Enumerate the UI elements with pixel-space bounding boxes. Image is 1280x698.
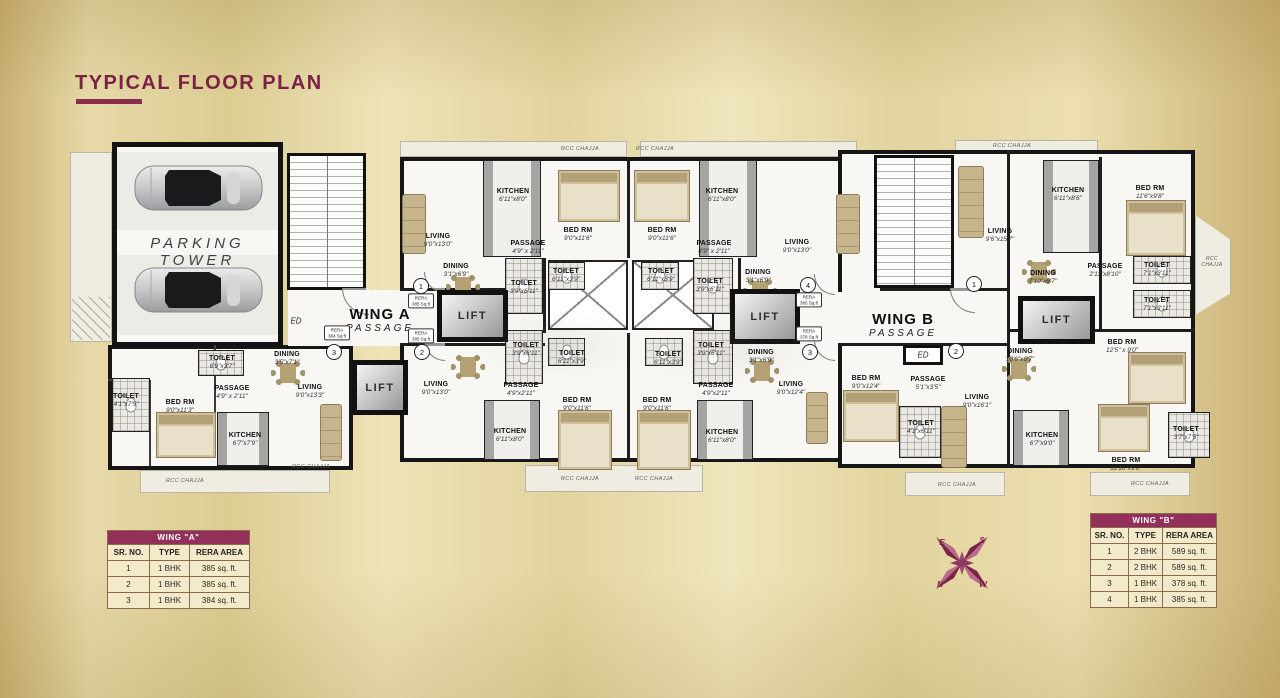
wing-b-table: WING "B" SR. NO. TYPE RERA AREA 12 BHK58… xyxy=(1090,513,1217,608)
compass-north-label: N xyxy=(937,580,943,589)
lift: LIFT xyxy=(730,289,800,344)
wing-b-table-title: WING "B" xyxy=(1091,514,1217,528)
room-label: KITCHEN6'11"x8'0" xyxy=(706,188,739,204)
rera-area-badge: RERA384 Sq.ft xyxy=(324,325,350,340)
room-label: BED RM9'0"x11'3" xyxy=(166,399,195,415)
room-label: PASSAGE4'9" x 2'11" xyxy=(696,240,731,256)
compass-south-label: S xyxy=(979,536,985,545)
unit-number-badge: 2 xyxy=(948,343,964,359)
chajja-label: RCC CHAJJA xyxy=(993,143,1031,149)
room-label: LIVING9'0"x13'0" xyxy=(424,233,452,249)
lift: LIFT xyxy=(1018,296,1095,344)
room-label: DINING3'5"x7'1" xyxy=(274,351,300,367)
room-label: PASSAGE4'9" x 2'11" xyxy=(214,385,249,401)
room-label: TOILET7'1"x3'11" xyxy=(1143,297,1171,313)
room-label: LIVING9'0"x16'1" xyxy=(963,394,991,410)
sofa-icon xyxy=(941,406,967,468)
room-label: TOILET6'11"x3'9" xyxy=(552,268,580,284)
floor-plan-page: TYPICAL FLOOR PLAN PARKING TOWER xyxy=(0,0,1280,698)
room-label: PASSAGE2'11"x8'10" xyxy=(1087,263,1122,279)
chajja-label: RCC CHAJJA xyxy=(292,464,330,470)
car-top-view-icon xyxy=(131,161,266,215)
sofa-icon xyxy=(806,392,828,444)
parking-tower: PARKING TOWER xyxy=(112,142,283,347)
stair-hatch xyxy=(72,297,110,340)
chajja-label: RCC CHAJJA xyxy=(166,478,204,484)
room-label: DINING10'6"x6'7" xyxy=(1006,348,1034,364)
table-row: 11 BHK385 sq. ft. xyxy=(108,561,250,577)
table-row: 31 BHK378 sq. ft. xyxy=(1091,576,1217,592)
chajja-label: RCC CHAJJA xyxy=(636,146,674,152)
rera-area-badge: RERA385 Sq.ft xyxy=(408,328,434,343)
room-label: BED RM9'0"x12'4" xyxy=(852,375,881,391)
bed-icon xyxy=(1098,404,1150,452)
room-label: TOILET3'9"x6'11" xyxy=(510,280,538,296)
room-label: TOILET6'11"x3'9" xyxy=(654,351,682,367)
table-row: 21 BHK385 sq. ft. xyxy=(108,577,250,593)
chajja-label: RCC CHAJJA xyxy=(938,482,976,488)
room-label: TOILET3'9"x6'11" xyxy=(512,342,540,358)
room-label: PASSAGE4'9"x2'11" xyxy=(698,382,733,398)
table-row: 22 BHK589 sq. ft. xyxy=(1091,560,1217,576)
room-label: TOILET3'9"x6'11" xyxy=(696,278,724,294)
room-label: BED RM9'0"x11'6" xyxy=(643,397,672,413)
wing-b-label: WING BPASSAGE xyxy=(869,311,937,339)
bed-icon xyxy=(156,412,216,458)
room-label: KITCHEN6'11"x8'6" xyxy=(1052,187,1085,203)
kitchen-room xyxy=(1043,160,1099,253)
room-label: KITCHEN6'11"x8'0" xyxy=(497,188,530,204)
room-label: DINING3'1"x6'9" xyxy=(443,263,469,279)
bed-icon xyxy=(843,390,899,442)
unit-number-badge: 3 xyxy=(802,344,818,360)
chajja-label: RCC CHAJJA xyxy=(1200,256,1224,269)
room-label: TOILET6'11"x3'9" xyxy=(647,268,675,284)
unit-number-badge: 4 xyxy=(800,277,816,293)
room-label: DINING7'10"x6'7" xyxy=(1029,270,1057,286)
room-label: KITCHEN6'7"x9'0" xyxy=(1026,432,1059,448)
chajja-label: RCC CHAJJA xyxy=(635,476,673,482)
lift: LIFT xyxy=(352,360,408,415)
room-label: BED RM9'0"x11'6" xyxy=(648,227,677,243)
room-label: KITCHEN6'11"x8'0" xyxy=(706,429,739,445)
chajja-label: RCC CHAJJA xyxy=(561,476,599,482)
room-label: LIVING9'6"x15'7" xyxy=(986,228,1014,244)
room-label: DINING3'1"x6'9" xyxy=(748,349,774,365)
bed-icon xyxy=(634,170,690,222)
room-label: TOILET3'7"x7'5" xyxy=(1173,426,1199,442)
room-label: KITCHEN6'11"x8'0" xyxy=(494,428,527,444)
table-row: 41 BHK385 sq. ft. xyxy=(1091,592,1217,608)
dining-set-icon xyxy=(451,350,485,384)
sofa-icon xyxy=(958,166,984,238)
car-top-view-icon xyxy=(131,263,266,317)
bed-icon xyxy=(558,170,620,222)
unit-number-badge: 1 xyxy=(413,278,429,294)
room-label: BED RM9'0"x11'6" xyxy=(564,227,593,243)
staircase-wing-a xyxy=(287,153,366,290)
bed-icon xyxy=(637,410,691,470)
room-label: BED RM12'5" x 9'0" xyxy=(1106,339,1138,355)
room-label: PASSAGE4'9" x 2'11" xyxy=(510,240,545,256)
table-row: 12 BHK589 sq. ft. xyxy=(1091,544,1217,560)
sofa-icon xyxy=(836,194,860,254)
rera-area-badge: RERA378 Sq.ft xyxy=(796,326,822,341)
room-label: TOILET3'9"x6'11" xyxy=(697,342,725,358)
table-row: 31 BHK384 sq. ft. xyxy=(108,593,250,609)
wing-a-table-title: WING "A" xyxy=(108,531,250,545)
unit-number-badge: 2 xyxy=(414,344,430,360)
page-title: TYPICAL FLOOR PLAN xyxy=(75,72,323,95)
room-label: TOILET6'9"x3'7" xyxy=(209,355,235,371)
parking-tower-label: PARKING TOWER xyxy=(117,235,278,269)
room-label: TOILET7'1"x3'11" xyxy=(1143,262,1171,278)
unit-number-badge: 3 xyxy=(326,344,342,360)
bed-icon xyxy=(1126,200,1186,256)
rera-area-badge: RERA385 Sq.ft xyxy=(796,292,822,307)
room-label: DINING3'1"x6'9" xyxy=(745,269,771,285)
unit-number-badge: 1 xyxy=(966,276,982,292)
wing-a-table: WING "A" SR. NO. TYPE RERA AREA 11 BHK38… xyxy=(107,530,250,609)
room-label: LIVING9'0"x13'3" xyxy=(296,384,324,400)
rera-area-badge: RERA385 Sq.ft xyxy=(408,293,434,308)
wing-a-label: WING APASSAGE xyxy=(346,306,414,334)
room-label: BED RM11'10"x9'0" xyxy=(1110,457,1142,473)
ed-label: ED xyxy=(917,351,928,360)
room-label: PASSAGE5'1"x3'5" xyxy=(910,376,945,392)
room-label: LIVING9'0"x12'4" xyxy=(777,381,805,397)
sofa-icon xyxy=(320,404,342,461)
lift: LIFT xyxy=(437,290,508,342)
room-label: TOILET6'11"x3'9" xyxy=(558,350,586,366)
room-label: TOILET4'1"x6'11" xyxy=(907,420,935,436)
room-label: LIVING9'0"x13'0" xyxy=(422,381,450,397)
bed-icon xyxy=(558,410,612,470)
room-label: BED RM9'0"x11'6" xyxy=(563,397,592,413)
room-label: TOILET4'1"x7'5" xyxy=(113,393,139,409)
staircase-wing-b xyxy=(874,155,954,288)
chajja-label: RCC CHAJJA xyxy=(561,146,599,152)
compass-rose-icon: E S N W xyxy=(930,531,994,595)
title-underline xyxy=(76,99,142,104)
room-label: PASSAGE4'9"x2'11" xyxy=(503,382,538,398)
room-label: LIVING9'0"x13'0" xyxy=(783,239,811,255)
room-label: BED RM11'6"x9'8" xyxy=(1136,185,1165,201)
compass-east-label: E xyxy=(939,538,945,547)
ed-label: ED xyxy=(290,317,301,326)
sofa-icon xyxy=(402,194,426,254)
bed-icon xyxy=(1128,352,1186,404)
room-label: KITCHEN6'7"x7'9" xyxy=(229,432,262,448)
chajja-label: RCC CHAJJA xyxy=(1131,481,1169,487)
